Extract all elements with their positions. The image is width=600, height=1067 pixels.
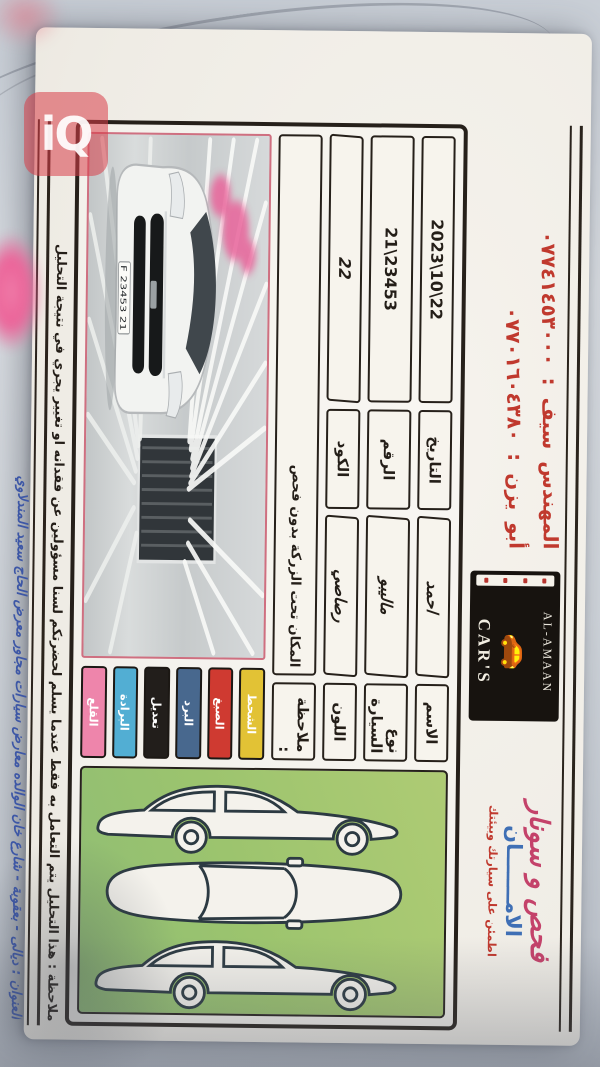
field-value-date: 22\10\2023 xyxy=(418,136,455,403)
phone-numbers: المهندس سيف : ٠٧٧٤١٤٥٣٠٠٠ أبو يزن : ٠٧٧٠… xyxy=(499,125,566,562)
white-car-front: 21 F 23453 xyxy=(104,164,218,418)
field-value-color: رصاصي xyxy=(323,515,359,678)
form-fields-area: الاسم احمد التاريخ 22\10\2023 نوع السيار… xyxy=(80,132,456,762)
yellow-car-icon: 🚗 xyxy=(501,633,531,671)
iq-watermark: iQ xyxy=(24,92,108,176)
fields-grid: الاسم احمد التاريخ 22\10\2023 نوع السيار… xyxy=(271,134,456,762)
legend-chip-modified: تعديل xyxy=(143,667,170,759)
corner-shadow xyxy=(0,837,180,1067)
phone-line-engineer: المهندس سيف : ٠٧٧٤١٤٥٣٠٠٠ xyxy=(536,125,563,549)
field-value-code: 22 xyxy=(327,134,364,404)
phone-number: ٠٧٧٠١٦٠٤٣٨٠ xyxy=(501,307,527,442)
note-value: المكان تحت الزركة بدون فحص xyxy=(272,134,323,675)
logo-side-strip xyxy=(476,575,554,587)
license-plate-text: 21 F 23453 xyxy=(118,265,128,331)
cars-logo-box: AL-AMAAN 🚗 CAR'S xyxy=(469,571,561,722)
photo-and-legend: الشحط الصبغ البرد تعديل البرادة القلع xyxy=(80,132,272,760)
logo-brand-text: AL-AMAAN xyxy=(539,612,555,694)
field-value-car-type: ماليبو xyxy=(364,515,410,679)
legend-chip-paint: الصبغ xyxy=(207,667,234,759)
field-label-number: الرقم xyxy=(366,409,411,510)
field-value-name: احمد xyxy=(415,516,451,679)
chevrolet-emblem xyxy=(150,281,157,309)
inspection-tunnel-photo: 21 F 23453 xyxy=(83,134,269,658)
legend-chip-grinding: البرد xyxy=(175,667,202,759)
field-label-date: التاريخ xyxy=(417,410,452,510)
field-value-number: 23453\21 xyxy=(367,135,414,403)
grille-lower xyxy=(132,216,146,374)
legend-chip-removal: القلع xyxy=(80,666,107,758)
logo-cars-text: CAR'S xyxy=(473,619,494,685)
phone-number: ٠٧٧٤١٤٥٣٠٠٠ xyxy=(537,231,562,365)
damage-color-legend: الشحط الصبغ البرد تعديل البرادة القلع xyxy=(80,666,265,760)
vehicle-photo: 21 F 23453 xyxy=(81,132,271,660)
sheet-header: فحص و سونار الامـــــــان اطمئن على سيار… xyxy=(459,125,566,1032)
screenshot-root: فحص و سونار الامـــــــان اطمئن على سيار… xyxy=(0,0,600,1067)
phone-label: المهندس سيف : xyxy=(538,378,563,550)
field-label-car-type: نوع السيارة xyxy=(363,683,408,762)
phone-label: أبو يزن : xyxy=(503,453,529,549)
phone-line-abu-yazan: أبو يزن : ٠٧٧٠١٦٠٤٣٨٠ xyxy=(498,125,529,549)
note-label: ملاحظة : xyxy=(271,682,316,761)
field-label-code: الكود xyxy=(325,409,360,509)
legend-chip-filing: البرادة xyxy=(112,666,139,758)
legend-chip-scratch: الشحط xyxy=(238,668,265,760)
field-label-name: الاسم xyxy=(414,684,449,762)
field-label-color: اللون xyxy=(322,683,357,761)
iq-watermark-text: iQ xyxy=(41,107,92,161)
